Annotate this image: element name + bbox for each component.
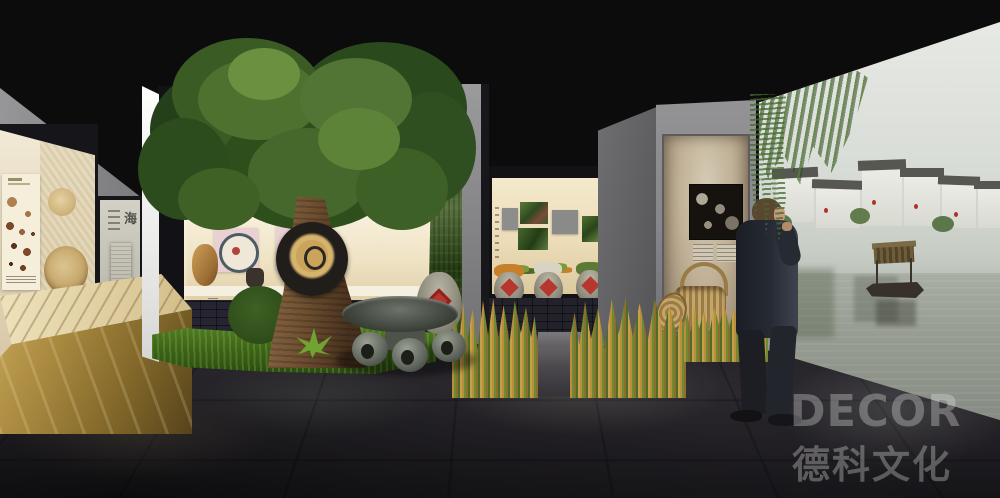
stone-table-top [342,296,458,332]
artifact-panel [2,174,40,290]
exhibition-hall-rendering: 海 [0,0,1000,498]
red-diamond-emblem [581,276,599,294]
red-diamond-emblem [500,278,518,296]
text-panel [502,208,518,230]
artifact-specimens [2,174,40,290]
ceramic-plate [219,233,259,273]
brand-watermark: 德科文化 [792,434,952,489]
harvest-exhibit-bay [487,166,614,338]
mural-house [978,188,1000,228]
red-lantern [824,208,828,213]
plate-panel [214,228,258,272]
earthen-jar [192,244,218,286]
red-lantern [872,200,876,205]
gray-wall-side-face [598,104,658,346]
boat-reflection [876,300,916,326]
red-diamond-emblem [539,278,557,296]
photo-panel-flowers [520,202,548,224]
boat-canopy [874,246,915,264]
mural-roof [974,181,1000,189]
small-woven-tray [48,188,76,216]
mural-roof [858,159,906,171]
stool-hole [361,344,374,359]
stool-hole [441,341,453,355]
stone-stool [392,338,428,372]
boat-post [910,258,912,284]
visitor-shoe [730,410,762,422]
photo-panel-plants [518,228,548,250]
boat-hull [866,282,924,298]
red-lantern [914,204,918,209]
decor-logo-watermark: DECOR [790,386,962,437]
calligraphy-columns [108,210,120,232]
mural-roof [812,179,864,190]
red-lantern [954,212,958,217]
text-panel [552,210,578,234]
bronze-tripod-vessel [246,268,264,288]
mural-shrub [932,216,954,232]
wall-text-label [693,244,713,262]
tree-canopy-highlight [228,48,300,100]
stone-stool [432,330,466,362]
disc-center-ring [304,246,326,270]
coiled-disc-artifact [276,222,348,296]
plate-motif [232,247,240,255]
visitor-leg [738,330,768,414]
boat-post [876,260,878,286]
harvest-exhibit-backwall [492,178,609,294]
calligraphy-scroll [495,206,499,258]
visitor-hand [782,222,792,231]
canopy-boat [866,234,924,318]
partition-shadow-gap [481,84,489,344]
stool-hole [401,350,414,365]
tree-canopy-blob [178,168,260,230]
tree-canopy-highlight [318,108,400,170]
calligraphy-character: 海 [124,208,137,227]
stone-stool [352,332,388,366]
mural-shrub [850,208,870,224]
